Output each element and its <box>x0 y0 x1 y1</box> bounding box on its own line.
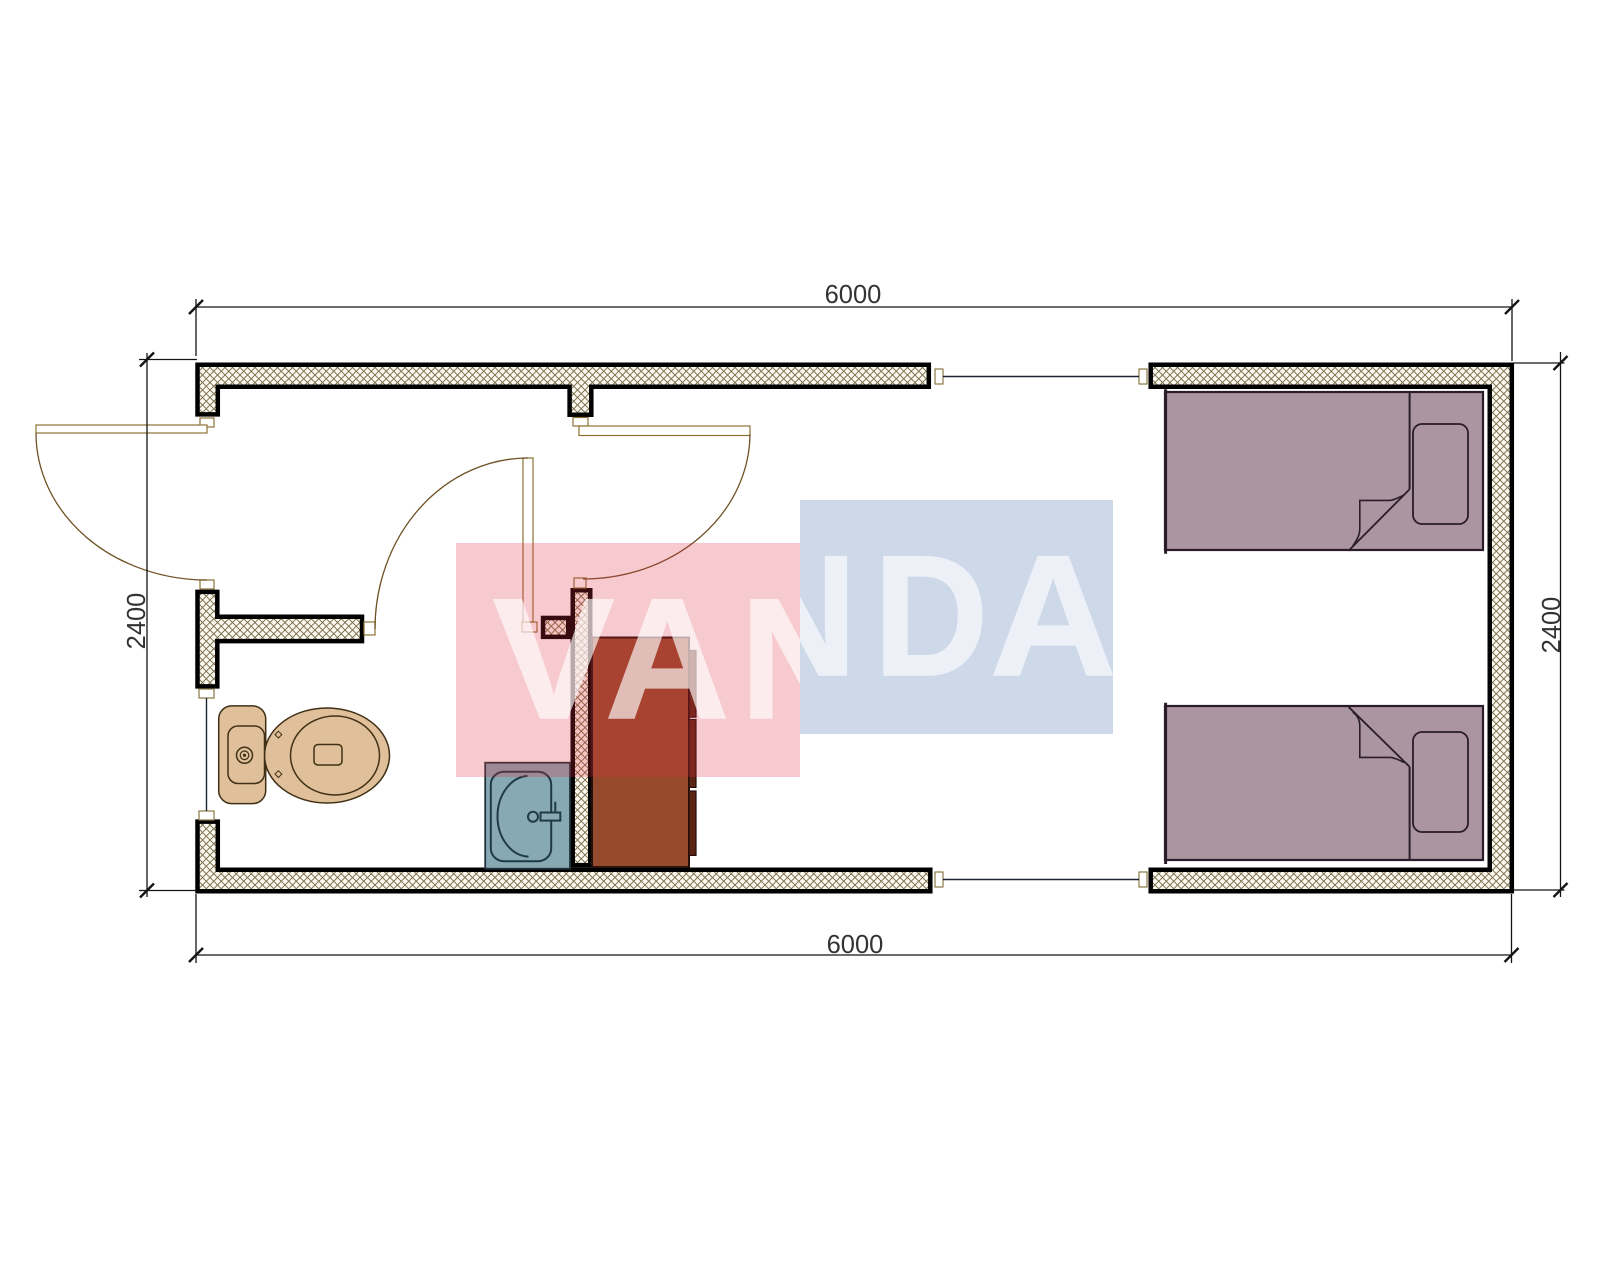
svg-text:6000: 6000 <box>825 281 882 309</box>
svg-text:A: A <box>990 520 1117 712</box>
svg-text:D: D <box>873 520 988 712</box>
svg-text:2400: 2400 <box>1538 597 1566 654</box>
svg-text:2400: 2400 <box>123 593 151 650</box>
svg-text:V: V <box>493 563 615 755</box>
svg-text:6000: 6000 <box>827 931 884 959</box>
svg-text:A: A <box>605 563 730 755</box>
